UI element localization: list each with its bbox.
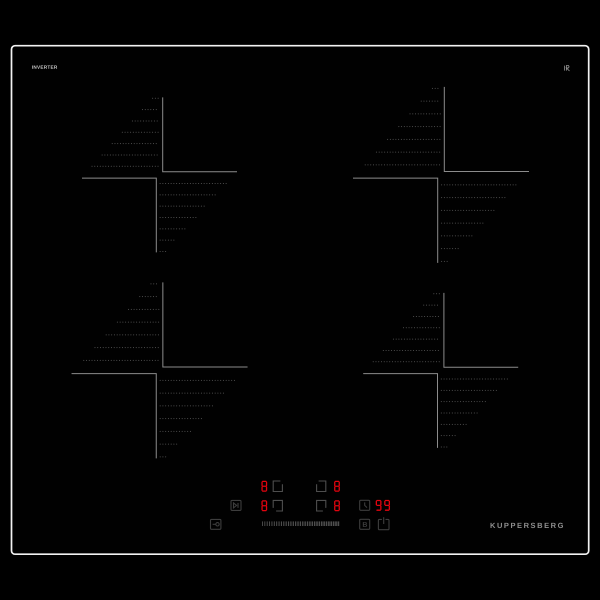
svg-text:B: B [362,522,367,529]
svg-text:KUPPERSBERG: KUPPERSBERG [490,521,565,530]
svg-text:INVERTER: INVERTER [32,65,58,70]
